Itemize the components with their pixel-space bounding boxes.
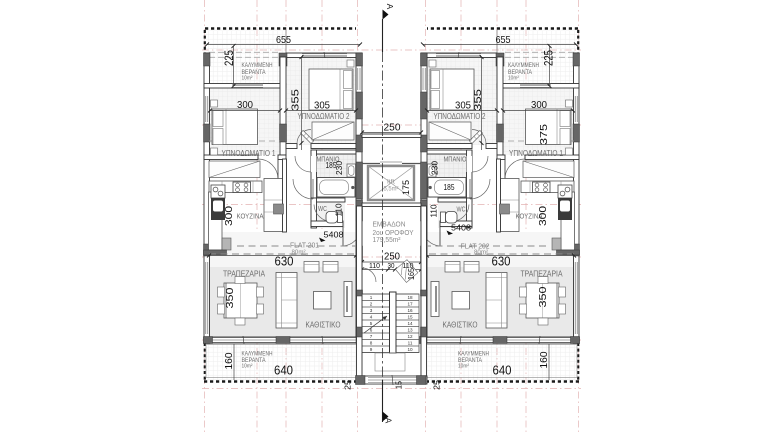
svg-text:ΚΑΛΥΜΜΕΝΗ: ΚΑΛΥΜΜΕΝΗ bbox=[508, 62, 539, 69]
svg-text:5: 5 bbox=[370, 321, 373, 326]
svg-text:355: 355 bbox=[291, 88, 302, 111]
svg-text:WC: WC bbox=[318, 206, 327, 213]
svg-text:10m²: 10m² bbox=[242, 364, 253, 370]
svg-text:640: 640 bbox=[274, 364, 293, 378]
svg-text:16: 16 bbox=[407, 308, 413, 313]
svg-text:375: 375 bbox=[539, 123, 550, 145]
svg-text:ΤΡΑΠΕΖΑΡΙΑ: ΤΡΑΠΕΖΑΡΙΑ bbox=[521, 270, 564, 279]
svg-text:350: 350 bbox=[538, 286, 549, 308]
svg-text:4: 4 bbox=[370, 314, 373, 319]
svg-text:305: 305 bbox=[455, 100, 471, 112]
svg-text:225: 225 bbox=[224, 50, 236, 66]
svg-text:10m²: 10m² bbox=[508, 76, 519, 82]
svg-text:ΥΠΝΟΔΩΜΑΤΙΟ 2: ΥΠΝΟΔΩΜΑΤΙΟ 2 bbox=[298, 112, 350, 121]
svg-text:9: 9 bbox=[370, 347, 373, 352]
svg-text:8: 8 bbox=[370, 340, 373, 345]
svg-text:630: 630 bbox=[275, 255, 294, 269]
svg-text:ΚΑΛΥΜΜΕΝΗ: ΚΑΛΥΜΜΕΝΗ bbox=[242, 62, 273, 69]
svg-text:630: 630 bbox=[492, 255, 511, 269]
svg-text:10m²: 10m² bbox=[458, 364, 469, 370]
svg-text:lift: lift bbox=[387, 180, 395, 186]
svg-text:300: 300 bbox=[237, 99, 253, 111]
svg-text:300: 300 bbox=[531, 99, 547, 111]
svg-text:25: 25 bbox=[433, 379, 442, 390]
svg-text:179,55m²: 179,55m² bbox=[373, 235, 402, 244]
svg-text:1: 1 bbox=[370, 295, 373, 300]
svg-text:3: 3 bbox=[370, 308, 373, 313]
svg-text:5408: 5408 bbox=[324, 230, 345, 239]
svg-text:230: 230 bbox=[334, 161, 344, 175]
svg-text:ΚΑΘΙΣΤΙΚΟ: ΚΑΘΙΣΤΙΚΟ bbox=[306, 321, 341, 330]
svg-text:A: A bbox=[385, 4, 395, 10]
svg-text:30: 30 bbox=[388, 263, 395, 270]
svg-text:305: 305 bbox=[314, 100, 330, 112]
svg-text:185: 185 bbox=[444, 182, 455, 192]
svg-text:10m²: 10m² bbox=[242, 76, 253, 82]
svg-text:14: 14 bbox=[407, 321, 413, 326]
svg-text:FLAT 201: FLAT 201 bbox=[290, 241, 319, 250]
svg-text:25: 25 bbox=[344, 379, 353, 390]
svg-text:355: 355 bbox=[473, 88, 484, 111]
svg-text:250: 250 bbox=[384, 122, 401, 134]
svg-text:WC: WC bbox=[457, 207, 466, 214]
svg-text:5,5m²: 5,5m² bbox=[384, 187, 399, 193]
svg-text:655: 655 bbox=[276, 34, 291, 46]
svg-text:15: 15 bbox=[395, 381, 404, 389]
svg-text:300: 300 bbox=[224, 205, 235, 226]
svg-text:ΚΟΥΖΙΝΑ: ΚΟΥΖΙΝΑ bbox=[237, 211, 264, 220]
svg-text:300: 300 bbox=[538, 205, 549, 226]
svg-text:ΥΠΝΟΔΩΜΑΤΙΟ 1: ΥΠΝΟΔΩΜΑΤΙΟ 1 bbox=[222, 149, 276, 158]
svg-text:18: 18 bbox=[407, 295, 413, 300]
svg-text:230: 230 bbox=[430, 161, 440, 175]
svg-text:640: 640 bbox=[493, 364, 512, 378]
svg-text:ΜΠΑΝΙΟ: ΜΠΑΝΙΟ bbox=[444, 155, 467, 164]
svg-text:10: 10 bbox=[407, 347, 413, 352]
svg-text:110: 110 bbox=[429, 204, 439, 217]
svg-text:15: 15 bbox=[407, 314, 413, 319]
svg-text:11: 11 bbox=[408, 340, 413, 345]
svg-text:160: 160 bbox=[224, 352, 235, 369]
svg-text:ΥΠΝΟΔΩΜΑΤΙΟ 1: ΥΠΝΟΔΩΜΑΤΙΟ 1 bbox=[509, 149, 563, 158]
svg-text:110: 110 bbox=[334, 203, 344, 216]
svg-text:7: 7 bbox=[370, 334, 373, 339]
svg-text:A: A bbox=[384, 418, 394, 424]
svg-text:ΤΡΑΠΕΖΑΡΙΑ: ΤΡΑΠΕΖΑΡΙΑ bbox=[223, 270, 266, 279]
svg-text:110: 110 bbox=[369, 263, 380, 270]
svg-text:13: 13 bbox=[407, 327, 413, 332]
svg-text:160: 160 bbox=[539, 351, 550, 368]
svg-text:165: 165 bbox=[407, 268, 416, 280]
svg-text:2: 2 bbox=[370, 301, 373, 306]
svg-text:ΚΑΘΙΣΤΙΚΟ: ΚΑΘΙΣΤΙΚΟ bbox=[443, 321, 478, 330]
svg-text:ΥΠΝΟΔΩΜΑΤΙΟ 2: ΥΠΝΟΔΩΜΑΤΙΟ 2 bbox=[434, 112, 486, 121]
svg-text:12: 12 bbox=[407, 334, 413, 339]
svg-text:5408: 5408 bbox=[451, 224, 472, 233]
svg-text:175: 175 bbox=[401, 180, 411, 195]
svg-text:6: 6 bbox=[370, 327, 373, 332]
svg-text:225: 225 bbox=[544, 50, 556, 66]
svg-text:17: 17 bbox=[407, 301, 413, 306]
svg-text:350: 350 bbox=[225, 287, 236, 309]
svg-text:655: 655 bbox=[496, 34, 511, 46]
svg-text:250: 250 bbox=[384, 252, 400, 263]
